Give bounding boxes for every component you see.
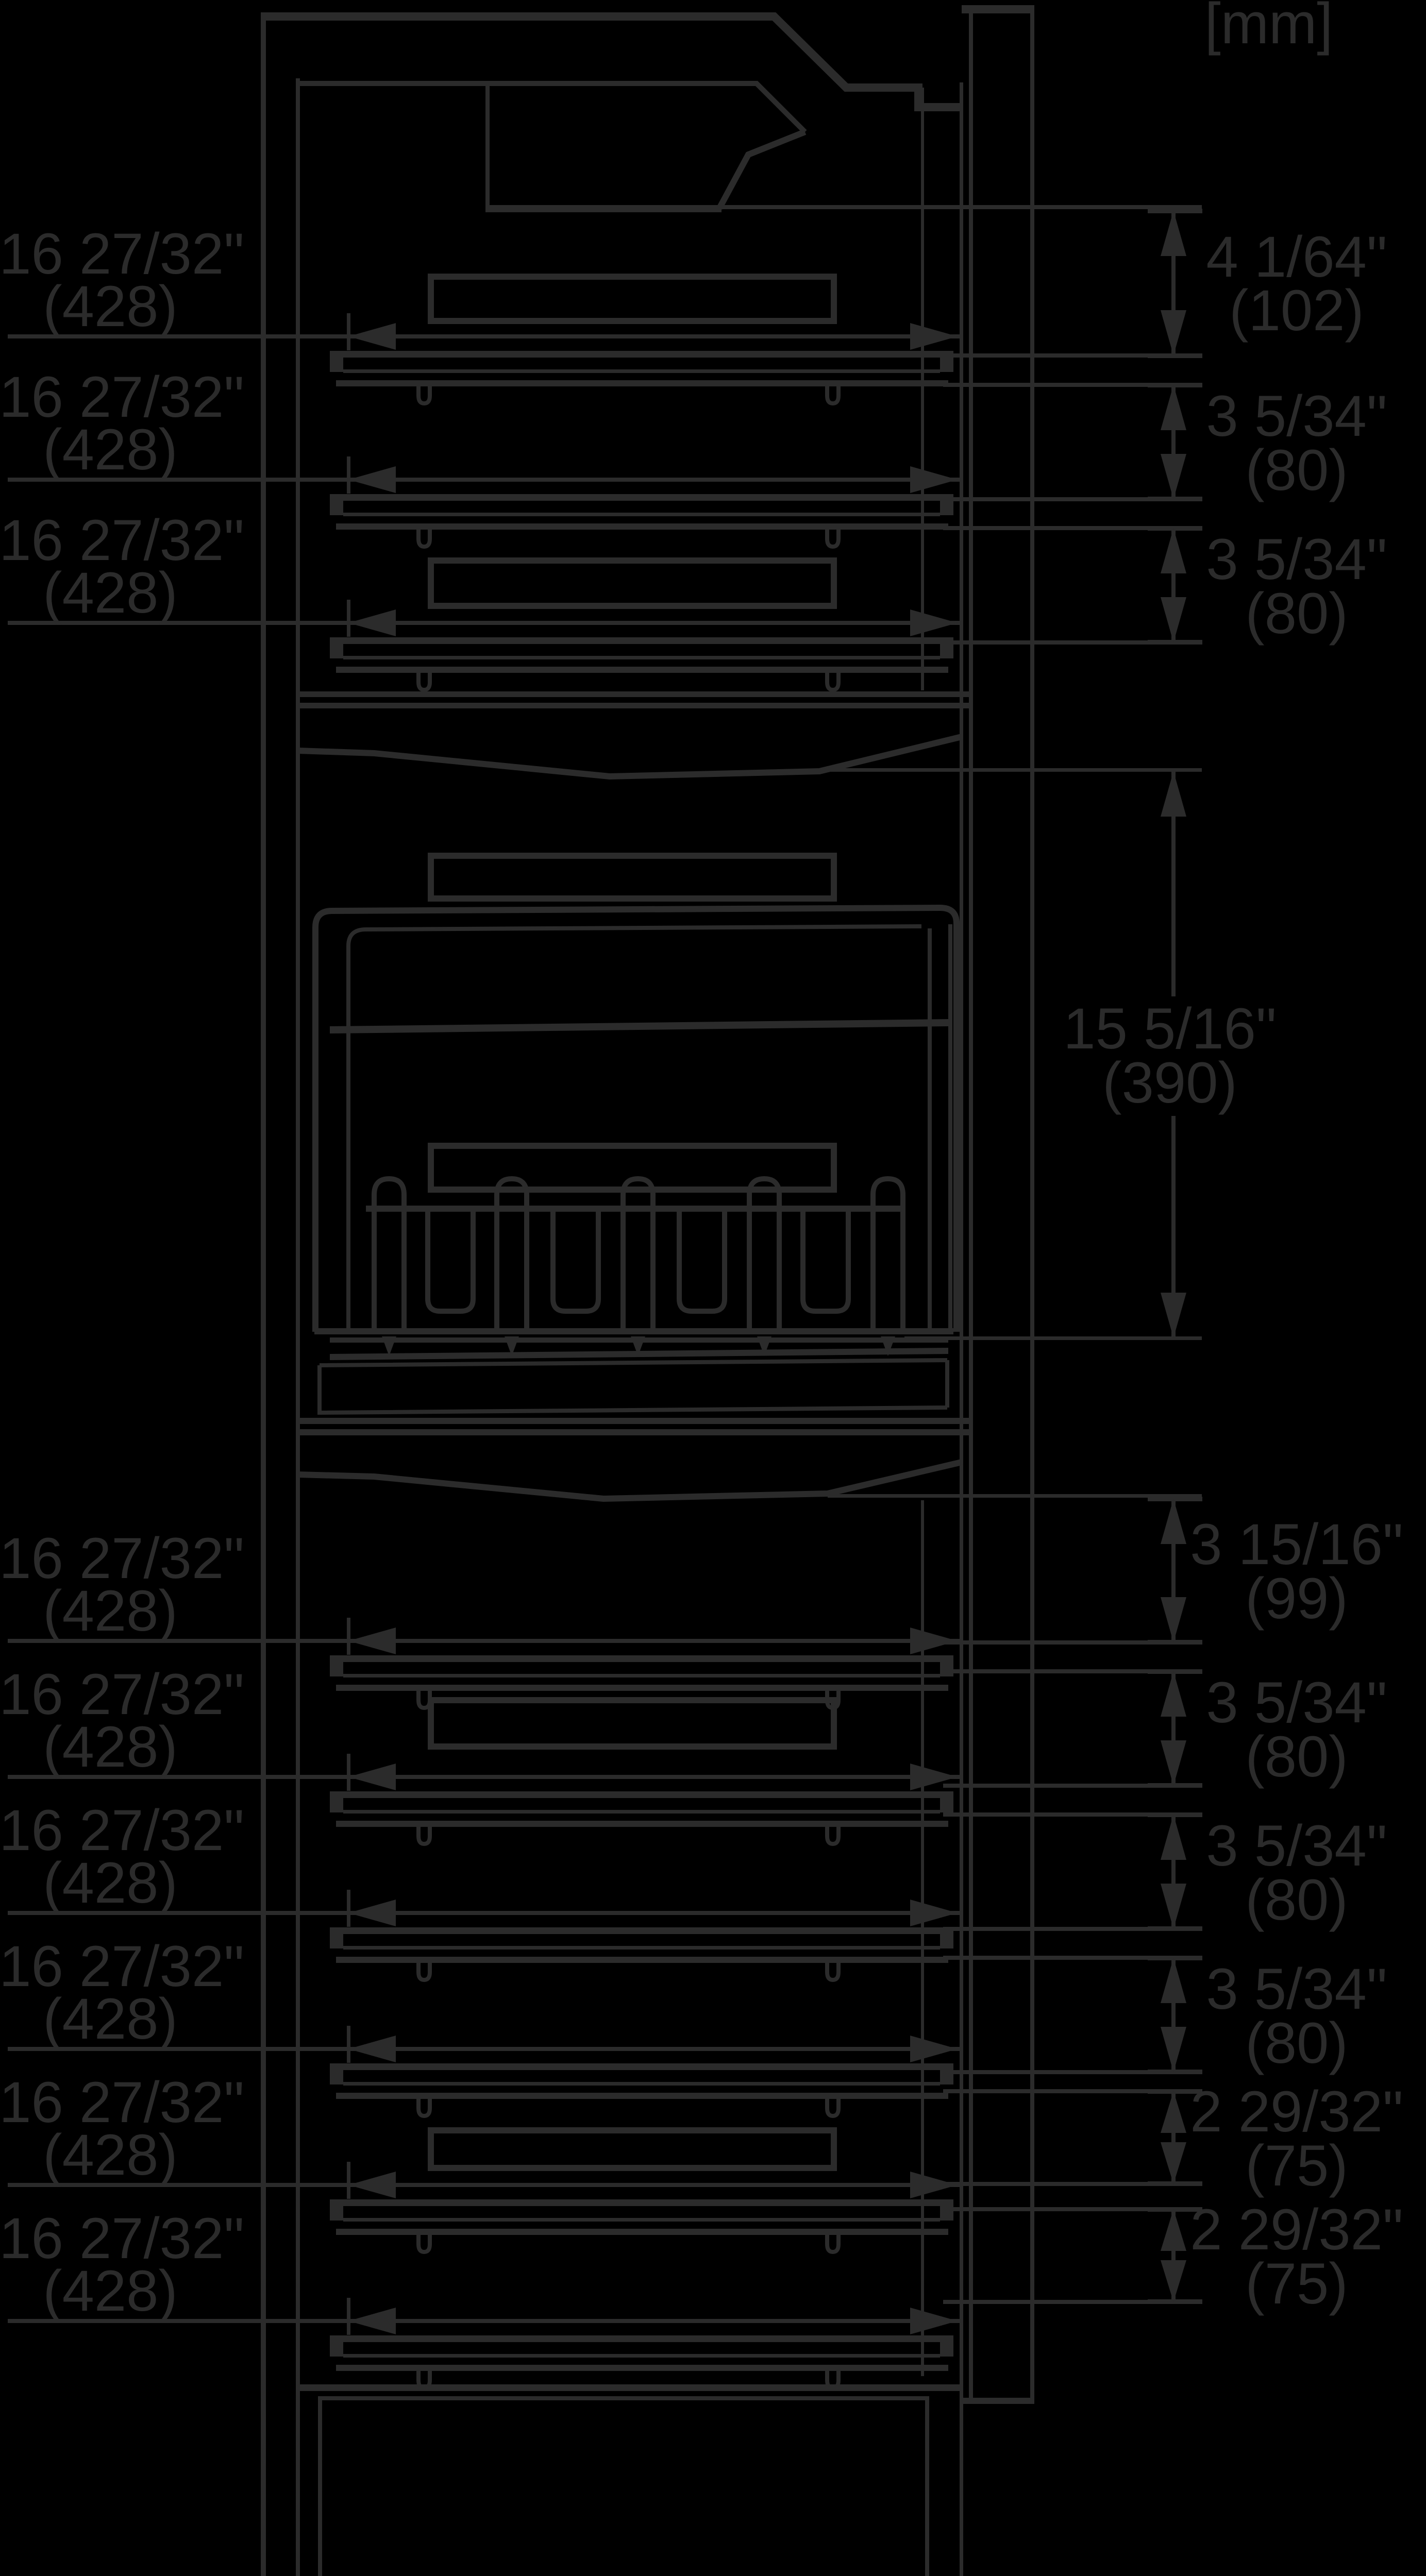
divider-lower-1 [298,1418,971,1424]
rack-post [749,1179,779,1329]
label-plate [431,856,834,899]
drawer-inner-left [348,926,921,1329]
dim-right-2: 3 5/34" (80) [943,383,1387,502]
dim-left-2-mm: (428) [43,417,177,482]
bottle-drawer [314,908,957,1413]
dim-right-9: 2 29/32" (75) [943,2079,1403,2198]
drawer-mid-rail [330,1019,948,1033]
rack-post [623,1179,653,1329]
rack-rail [366,1206,904,1212]
divider-lower-2 [298,1429,971,1435]
divider-upper-2 [298,703,971,708]
duct-box-bottom [485,205,722,212]
duct-box-side [485,83,490,208]
dim-left-4-mm: (428) [43,1579,177,1643]
dim-left-6-mm: (428) [43,1851,177,1915]
rack-slot [553,1212,598,1311]
shelf-label-plates [431,277,834,2168]
label-plate [431,561,834,606]
right-wall [969,5,973,2401]
dim-right-5: 3 15/16" (99) [828,1494,1403,1645]
dim-right-5-mm: (99) [1245,1566,1348,1631]
interior-bottom [298,2384,962,2391]
guide-line [921,88,924,690]
dim-right-4-mm: (390) [1102,1050,1237,1115]
dim-left-1-mm: (428) [43,274,177,338]
label-plate [431,2130,834,2168]
divider-upper-1 [298,691,971,697]
dim-right-7: 3 5/34" (80) [943,1812,1387,1932]
dim-left-3: 16 27/32" (428) [0,508,244,625]
left-outer-wall [261,12,266,2576]
dim-left-1: 16 27/32" (428) [0,222,244,338]
drawer-bottom-box [320,1360,947,1413]
dimension-drawing: 4 1/64" (102) 3 5/34" (80) 3 5/34" (80) [0,0,1426,2576]
appliance-dimension-diagram: 4 1/64" (102) 3 5/34" (80) 3 5/34" (80) [0,0,1426,2576]
dim-right-8-mm: (80) [1245,2011,1348,2075]
rack-slot [803,1212,848,1311]
rack-post [873,1179,903,1329]
dim-left-8-mm: (428) [43,2123,177,2187]
dim-left-9: 16 27/32" (428) [0,2206,244,2323]
top-slab [263,16,962,107]
dim-left-3-mm: (428) [43,561,177,625]
left-inner-wall [296,78,300,2576]
dim-right-3: 3 5/34" (80) [943,526,1387,646]
dim-right-9-mm: (75) [1245,2133,1348,2198]
dim-right-6-mm: (80) [1245,1724,1348,1789]
dim-right-10: 2 29/32" (75) [943,2197,1403,2316]
rack-slot [679,1212,725,1311]
dim-left-5: 16 27/32" (428) [0,1662,244,1779]
dim-left-9-mm: (428) [43,2259,177,2323]
dim-right-10-mm: (75) [1245,2251,1348,2316]
right-panel-top-cap [962,5,1034,13]
drawer-inner-right [930,924,950,1329]
left-dimensions: 16 27/32" (428) 16 27/32" (428) 16 27/32… [0,222,244,2323]
dim-right-6: 3 5/34" (80) [943,1669,1387,1789]
dim-left-7: 16 27/32" (428) [0,1934,244,2051]
extension-line [722,205,1202,209]
dim-left-8: 16 27/32" (428) [0,2070,244,2187]
dim-right-8: 3 5/34" (80) [943,1956,1387,2075]
dim-right-1: 4 1/64" (102) [943,209,1387,358]
top-inner-line [298,83,805,132]
roller [382,1336,396,1356]
label-plate [431,277,834,321]
rack-slot [428,1212,473,1311]
dim-left-2: 16 27/32" (428) [0,365,244,482]
dim-right-3-mm: (80) [1245,581,1348,646]
right-panel-outer [1030,5,1034,2401]
drawer-outline [315,908,957,1332]
dim-left-6: 16 27/32" (428) [0,1798,244,1915]
duct-funnel [719,132,805,208]
base-panel [320,2398,927,2576]
unit-note: [mm] [1205,0,1333,56]
dim-left-4: 16 27/32" (428) [0,1526,244,1643]
dim-right-7-mm: (80) [1245,1868,1348,1932]
front-curve-lower [298,1462,962,1499]
rack-post [497,1179,527,1329]
dim-right-4: 15 5/16" (390) [819,768,1277,1340]
dim-left-5-mm: (428) [43,1715,177,1779]
right-panel-bottom-cap [962,2398,1034,2404]
rack-post [374,1179,404,1329]
dim-left-7-mm: (428) [43,1987,177,2051]
dim-right-1-mm: (102) [1229,278,1364,343]
right-inner-wall [960,82,963,2576]
dim-right-2-mm: (80) [1245,438,1348,502]
label-plate [431,1700,834,1747]
drawer-rail-1 [314,1328,953,1334]
